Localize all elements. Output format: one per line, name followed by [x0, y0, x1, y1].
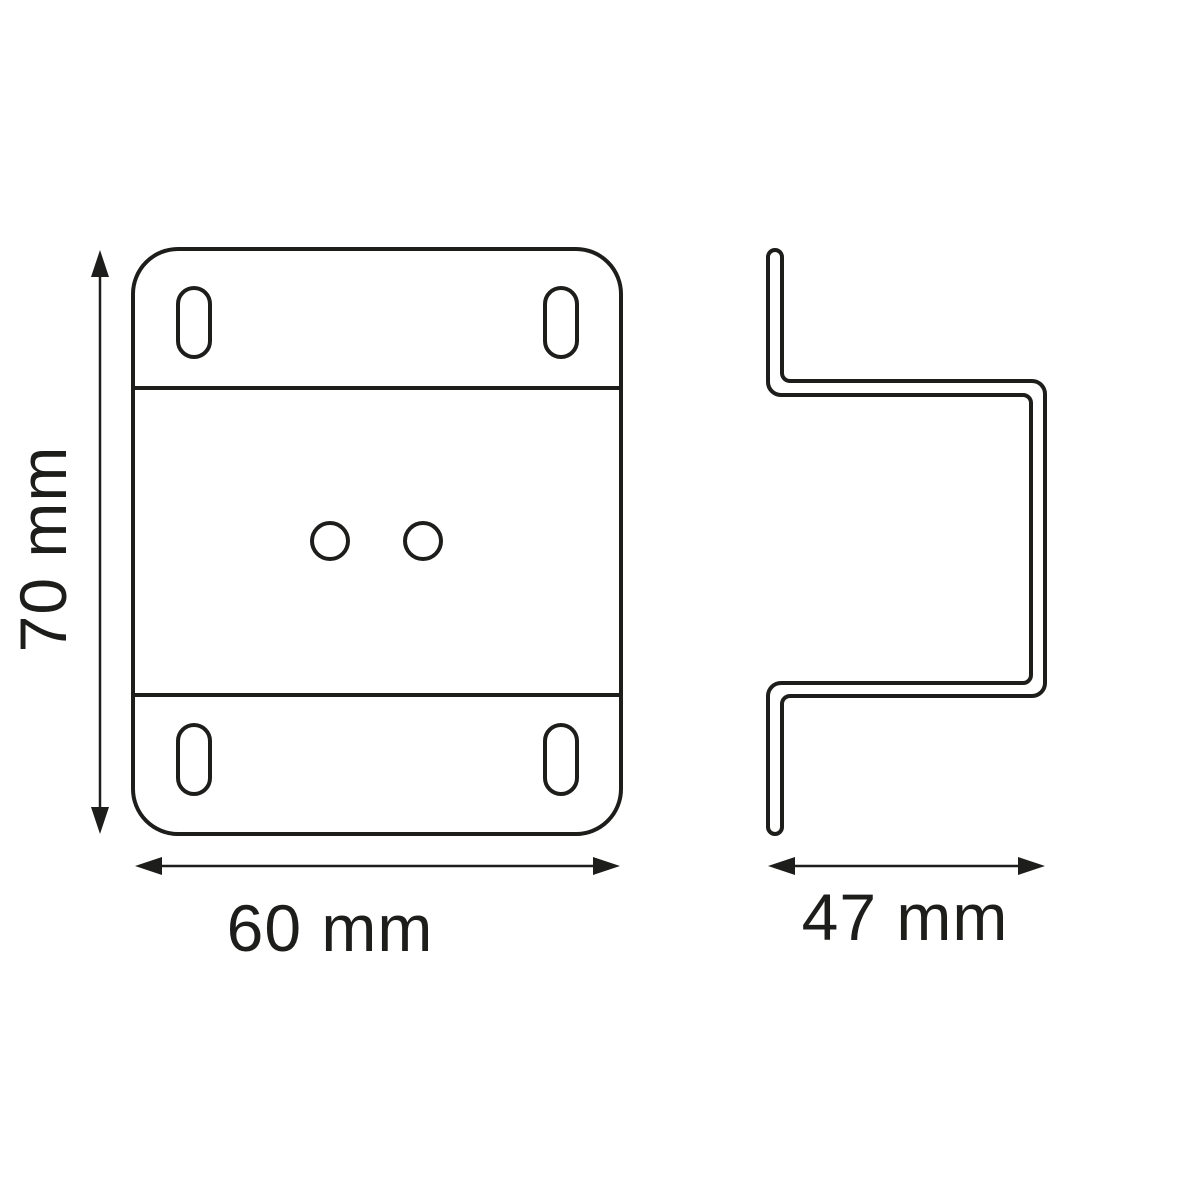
- front-width-label: 60 mm: [227, 891, 434, 965]
- technical-drawing-canvas: 70 mm 60 mm 47 mm: [0, 0, 1200, 1200]
- slot-hole-top-left: [178, 288, 210, 357]
- side-profile-outline: [768, 250, 1045, 834]
- round-hole-left: [312, 523, 348, 559]
- side-depth-label: 47 mm: [802, 880, 1009, 954]
- arrow-down-icon: [91, 807, 109, 834]
- round-hole-right: [405, 523, 441, 559]
- arrow-up-icon: [91, 250, 109, 277]
- arrow-right-icon: [1018, 857, 1045, 875]
- width-dimension: 60 mm: [135, 857, 620, 965]
- arrow-right-icon: [593, 857, 620, 875]
- bracket-dimension-drawing: 70 mm 60 mm 47 mm: [0, 0, 1200, 1200]
- slot-hole-bottom-right: [545, 725, 577, 794]
- slot-hole-top-right: [545, 288, 577, 357]
- side-view: [768, 250, 1045, 834]
- slot-hole-bottom-left: [178, 725, 210, 794]
- front-plate-outline: [133, 249, 621, 834]
- front-height-label: 70 mm: [6, 446, 80, 653]
- arrow-left-icon: [135, 857, 162, 875]
- arrow-left-icon: [768, 857, 795, 875]
- front-view: [133, 249, 621, 834]
- height-dimension: 70 mm: [6, 250, 109, 834]
- depth-dimension: 47 mm: [768, 857, 1045, 954]
